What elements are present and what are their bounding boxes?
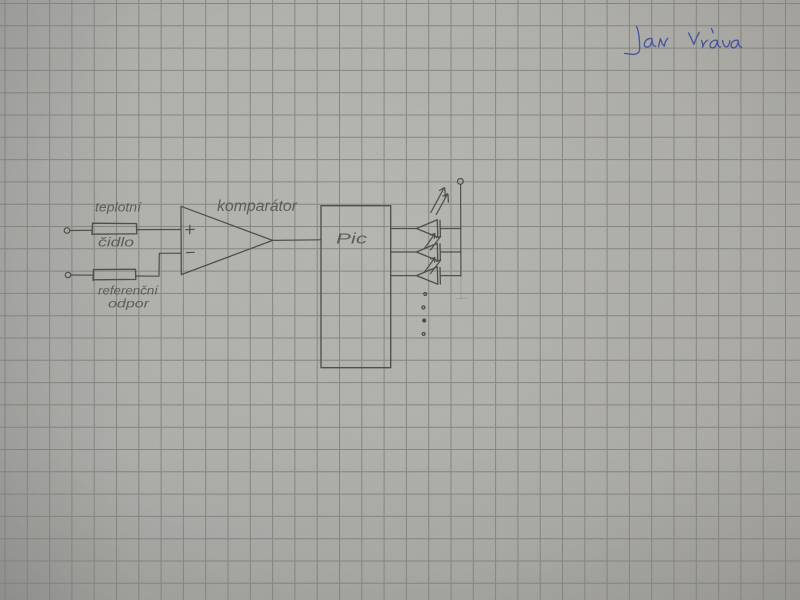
svg-text:odpor: odpor [108,297,150,311]
svg-text:čidlo: čidlo [98,236,134,250]
svg-text:teplotní: teplotní [95,201,143,215]
svg-text:Pic: Pic [336,231,368,248]
svg-text:komparátor: komparátor [217,198,298,215]
svg-text:referenční: referenční [98,284,160,298]
